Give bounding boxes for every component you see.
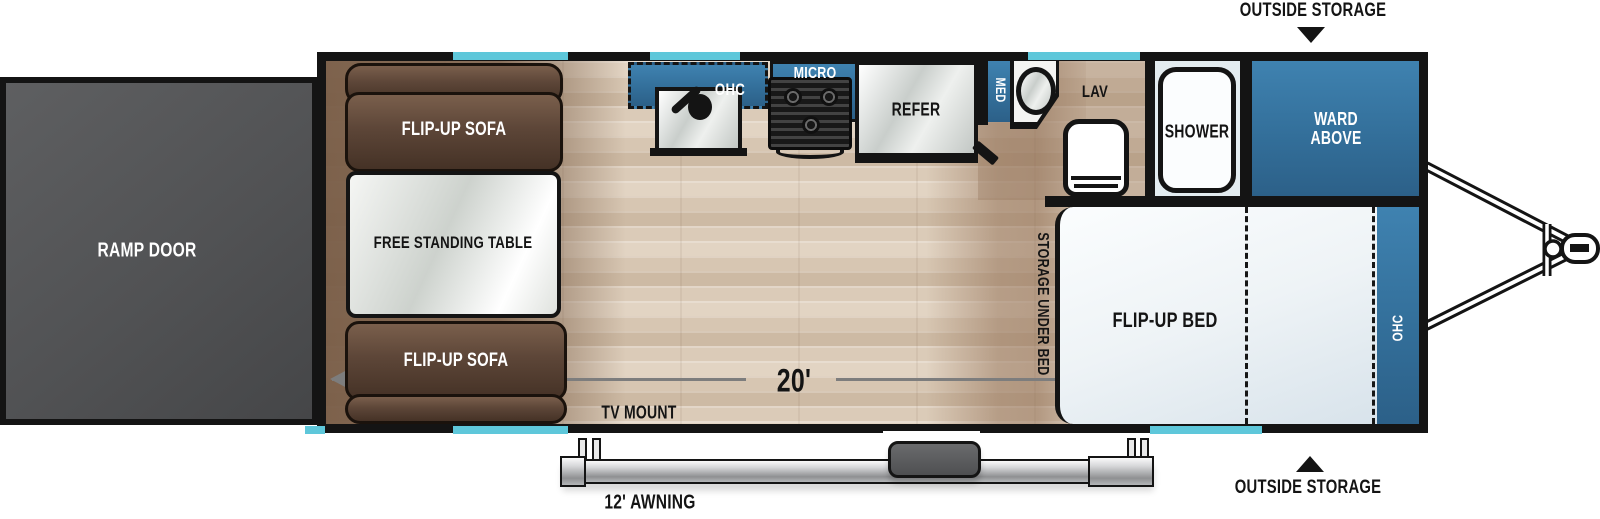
burner-icon xyxy=(802,116,820,134)
tv-mount-label: TV MOUNT xyxy=(601,403,676,424)
ramp-door-label: RAMP DOOR xyxy=(97,240,196,263)
bedroom-ohc-label: OHC xyxy=(1390,315,1407,342)
window xyxy=(453,426,568,434)
entry-door xyxy=(883,431,980,439)
bedroom-wall xyxy=(1045,196,1419,207)
flip-up-bed-label: FLIP-UP BED xyxy=(1112,309,1217,333)
length-dimension-label: 20' xyxy=(777,363,811,400)
outside-storage-top-arrow-icon xyxy=(1297,27,1325,43)
shower-label: SHOWER xyxy=(1165,122,1230,143)
toilet-seat-line xyxy=(1074,184,1119,188)
micro-label: MICRO xyxy=(794,65,837,83)
tongue-jack-icon xyxy=(1545,241,1561,257)
outside-storage-top-label: OUTSIDE STORAGE xyxy=(1240,0,1387,22)
window xyxy=(650,52,740,60)
burner-icon xyxy=(784,88,802,106)
window xyxy=(1150,426,1262,434)
bed-fold-line xyxy=(1245,207,1248,424)
flip-up-sofa-bottom-backrest xyxy=(345,394,567,424)
toilet xyxy=(1063,119,1129,197)
refer-label: REFER xyxy=(892,100,941,121)
ramp-door: RAMP DOOR xyxy=(0,77,318,425)
awning-label: 12' AWNING xyxy=(604,492,695,515)
burner-icon xyxy=(820,88,838,106)
free-standing-table-label: FREE STANDING TABLE xyxy=(374,233,533,253)
corner-sink-bowl xyxy=(1016,67,1056,115)
ward-above-label: WARD ABOVE xyxy=(1302,110,1371,148)
outside-storage-bottom-label: OUTSIDE STORAGE xyxy=(1235,477,1382,499)
shower-ward-wall xyxy=(1240,61,1252,206)
hitch-aframe xyxy=(1418,150,1600,350)
window xyxy=(453,52,568,60)
window xyxy=(1028,52,1140,60)
entry-step xyxy=(888,441,981,478)
window xyxy=(305,426,325,434)
flip-up-sofa-bottom-label: FLIP-UP SOFA xyxy=(404,350,509,372)
floorplan-stage: RAMP DOOR 20' FLIP-UP SOFA FREE STANDING… xyxy=(0,0,1600,519)
kitchen-bath-wall xyxy=(978,61,988,125)
med-label: MED xyxy=(993,78,1009,103)
flip-up-sofa-top-label: FLIP-UP SOFA xyxy=(402,119,507,141)
lav-label: LAV xyxy=(1082,82,1108,102)
awning-end-cap-right xyxy=(1088,456,1154,487)
counter-front-edge xyxy=(650,148,747,156)
toilet-seat-line xyxy=(1071,176,1120,180)
sink-drain-icon xyxy=(688,94,712,120)
awning-end-cap-left xyxy=(560,456,586,487)
storage-under-bed-label: STORAGE UNDER BED xyxy=(1033,232,1051,375)
trailer-body: 20' FLIP-UP SOFA FREE STANDING TABLE FLI… xyxy=(317,52,1428,433)
bed-edge-line xyxy=(1372,207,1375,424)
bath-shower-wall xyxy=(1145,61,1155,200)
kitchen-ohc-label: OHC xyxy=(715,80,745,100)
outside-storage-bottom-arrow-icon xyxy=(1296,456,1324,472)
range-stove xyxy=(768,77,852,150)
awning-tube xyxy=(562,459,1154,484)
